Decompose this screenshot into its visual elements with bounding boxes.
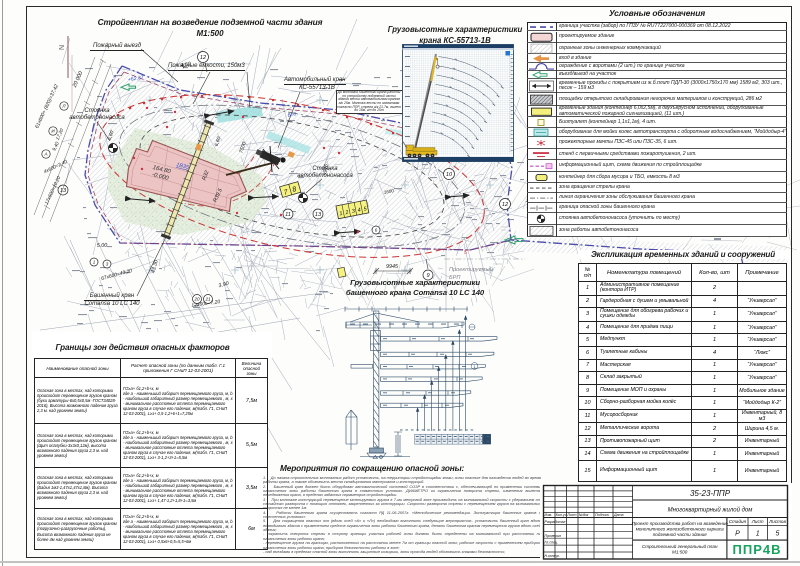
svg-text:Дата: Дата: [613, 513, 623, 517]
svg-text:Лист: Лист: [566, 513, 576, 517]
svg-text:М1:500: М1:500: [672, 550, 688, 555]
svg-text:монолитного железобетонного ка: монолитного железобетонного каркаса: [636, 527, 724, 532]
svg-text:Р: Р: [735, 531, 740, 538]
svg-text:Изм.: Изм.: [545, 513, 553, 517]
svg-text:Строительный генеральный план: Строительный генеральный план: [642, 543, 718, 549]
svg-text:35-23-ППР: 35-23-ППР: [690, 489, 731, 498]
svg-text:Проект производства работ на в: Проект производства работ на возведение: [631, 521, 728, 526]
svg-text:1: 1: [756, 531, 760, 538]
svg-text:Лист: Лист: [751, 519, 764, 524]
svg-text:Разработал: Разработал: [545, 520, 566, 524]
svg-text:Листов: Листов: [768, 519, 786, 524]
svg-text:Кол.уч: Кол.уч: [556, 513, 567, 517]
svg-text:подземной части здания: подземной части здания: [653, 531, 707, 537]
svg-text:Стадия: Стадия: [729, 519, 747, 524]
svg-text:Проверил: Проверил: [545, 534, 561, 538]
svg-text:Многоквартирный жилой дом: Многоквартирный жилой дом: [668, 507, 753, 514]
svg-text:Гл.спец.: Гл.спец.: [545, 541, 559, 545]
svg-text:ППР4В: ППР4В: [733, 542, 782, 557]
svg-text:№док: №док: [579, 513, 589, 517]
svg-text:Н.контр.: Н.контр.: [545, 554, 560, 558]
svg-text:Подпись: Подпись: [595, 513, 609, 517]
svg-text:5: 5: [776, 531, 780, 538]
